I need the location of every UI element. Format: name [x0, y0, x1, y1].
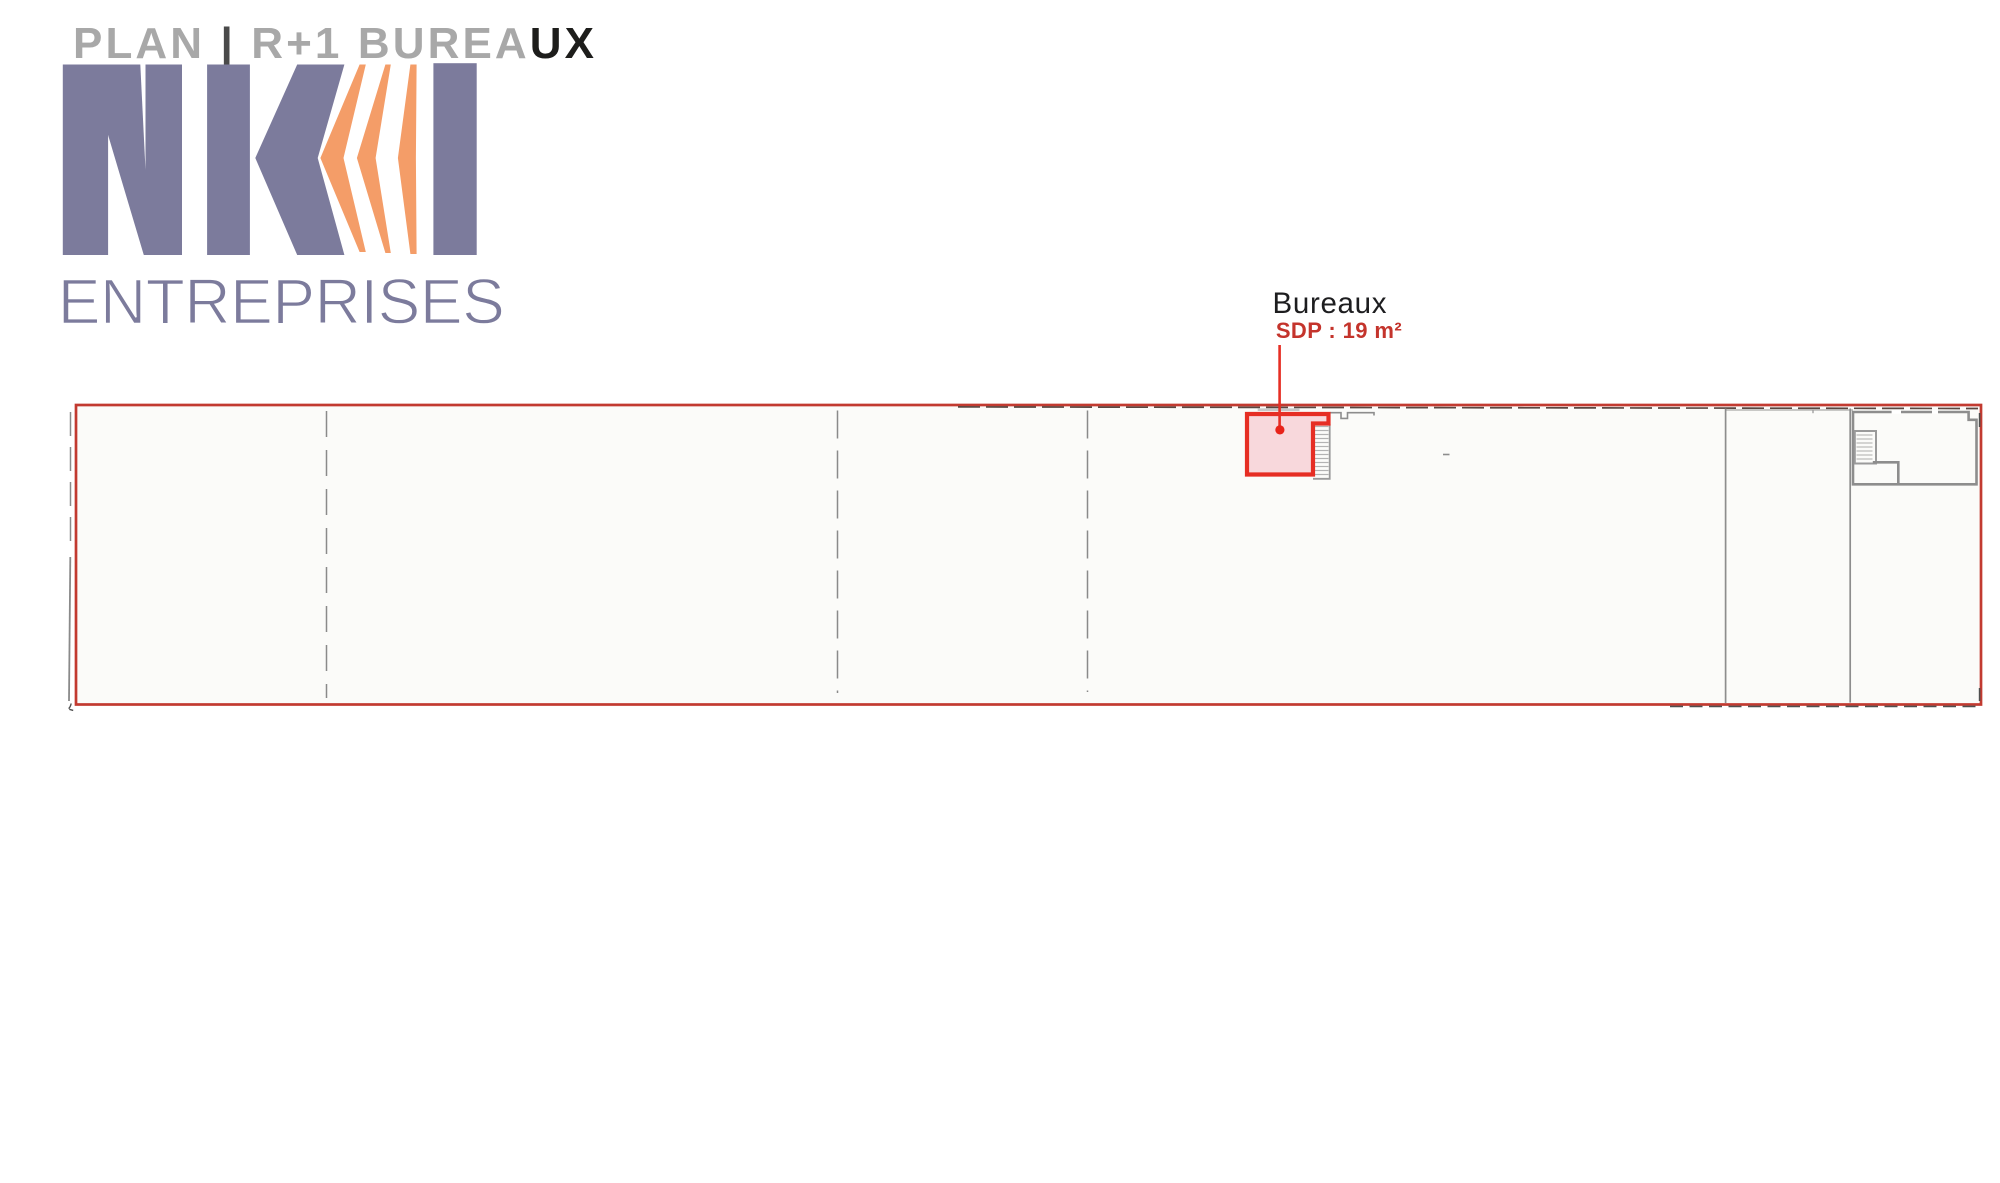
svg-text:ENTREPRISES: ENTREPRISES: [58, 266, 505, 338]
svg-text:PLAN | R+1 BUREAUX: PLAN | R+1 BUREAUX: [73, 19, 594, 69]
svg-text:Bureaux: Bureaux: [1273, 287, 1387, 320]
svg-text:SDP : 19 m²: SDP : 19 m²: [1276, 318, 1402, 343]
